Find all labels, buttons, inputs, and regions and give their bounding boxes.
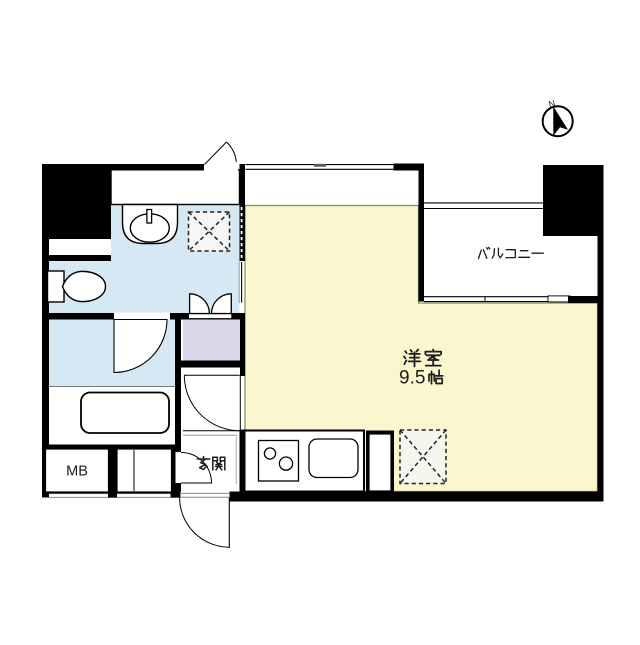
svg-text:9.5: 9.5 <box>399 368 425 389</box>
svg-text:MB: MB <box>66 464 88 480</box>
